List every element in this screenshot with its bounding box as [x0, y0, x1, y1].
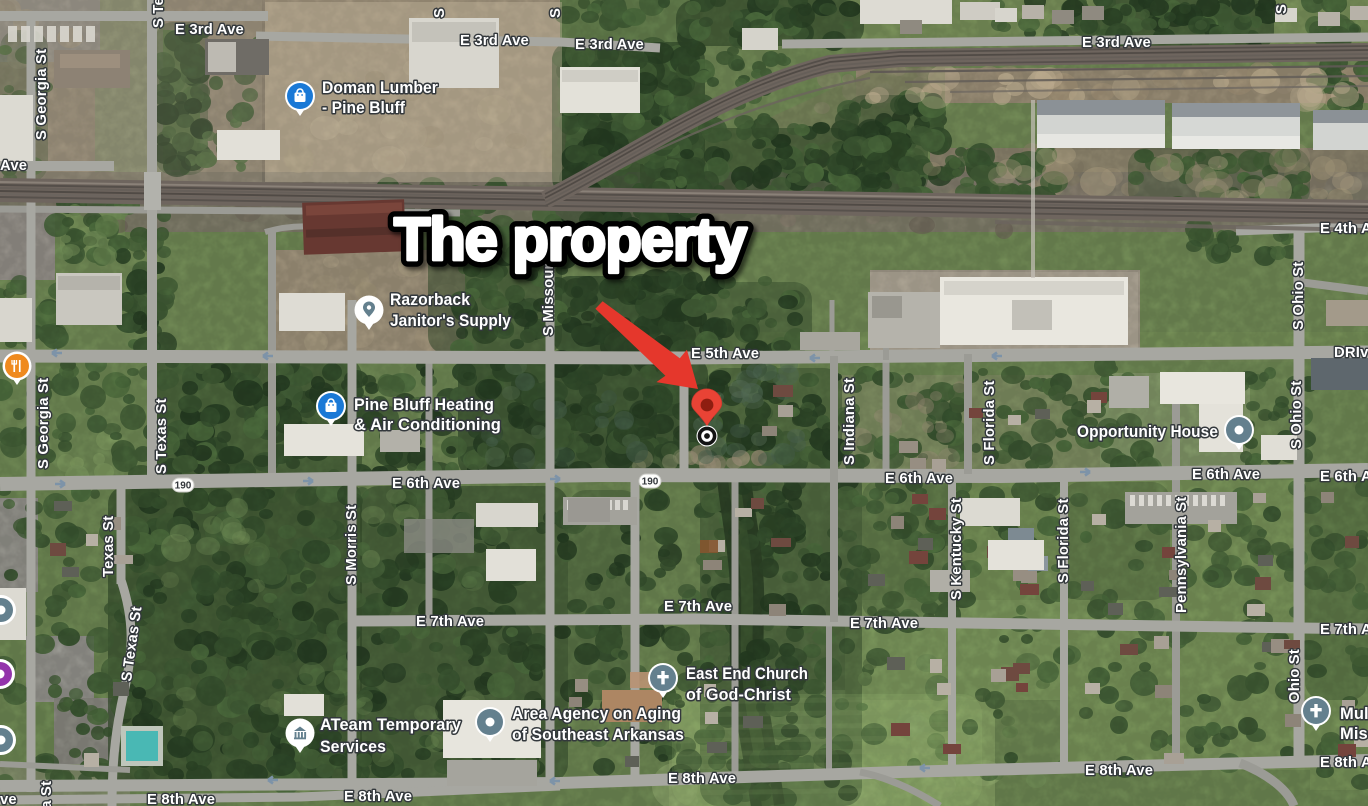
svg-text:S Morris St: S Morris St — [344, 505, 360, 585]
svg-text:S Texas St: S Texas St — [154, 398, 170, 474]
svg-text:Razorback: Razorback — [390, 291, 471, 309]
svg-text:E 5th Ave: E 5th Ave — [691, 346, 759, 362]
svg-text:S Ohio St: S Ohio St — [1291, 262, 1307, 330]
svg-text:E 4th A: E 4th A — [1320, 221, 1368, 237]
svg-text:of Southeast Arkansas: of Southeast Arkansas — [512, 726, 684, 744]
svg-text:E 3rd Ave: E 3rd Ave — [175, 22, 244, 38]
svg-text:S Georgia St: S Georgia St — [39, 781, 55, 806]
svg-text:E 3rd Ave: E 3rd Ave — [460, 33, 529, 49]
svg-text:Texas St: Texas St — [101, 516, 117, 577]
svg-text:ve: ve — [0, 792, 17, 806]
svg-text:S: S — [548, 8, 564, 18]
svg-text:Pennsylvania St: Pennsylvania St — [1174, 497, 1190, 614]
svg-text:190: 190 — [642, 477, 659, 488]
svg-text:S Georgia St: S Georgia St — [36, 378, 52, 469]
svg-text:Ohio St: Ohio St — [1287, 649, 1303, 703]
svg-text:E 7th A: E 7th A — [1320, 622, 1368, 638]
svg-text:Doman Lumber: Doman Lumber — [322, 79, 438, 97]
svg-text:Services: Services — [320, 738, 386, 756]
svg-text:E 6th Ave: E 6th Ave — [885, 471, 953, 487]
svg-text:Opportunity House: Opportunity House — [1077, 423, 1218, 441]
svg-text:S: S — [1274, 4, 1290, 14]
svg-text:E 7th Ave: E 7th Ave — [664, 599, 732, 615]
svg-text:S Ohio St: S Ohio St — [1289, 381, 1305, 449]
svg-text:E 8th Ave: E 8th Ave — [668, 771, 736, 787]
svg-text:ATeam Temporary: ATeam Temporary — [320, 716, 462, 734]
svg-text:E 3rd Ave: E 3rd Ave — [575, 37, 644, 53]
svg-text:190: 190 — [175, 481, 192, 492]
svg-text:Miss: Miss — [1340, 725, 1368, 743]
svg-text:S: S — [432, 8, 448, 18]
svg-text:S Indiana St: S Indiana St — [842, 378, 858, 465]
svg-text:& Air Conditioning: & Air Conditioning — [354, 416, 501, 434]
svg-text:S Georgia St: S Georgia St — [34, 49, 50, 140]
svg-text:S Florida St: S Florida St — [1056, 498, 1072, 583]
svg-text:S Texas St: S Texas St — [151, 0, 167, 28]
svg-text:S Florida St: S Florida St — [982, 380, 998, 465]
svg-text:E 7th Ave: E 7th Ave — [850, 616, 918, 632]
svg-text:E 8th Ave: E 8th Ave — [147, 792, 215, 806]
svg-text:E 6th A: E 6th A — [1320, 469, 1368, 485]
svg-text:S Kentucky St: S Kentucky St — [949, 498, 965, 600]
svg-text:Mul: Mul — [1340, 705, 1368, 723]
svg-text:E 6th Ave: E 6th Ave — [392, 476, 460, 492]
svg-text:Janitor's Supply: Janitor's Supply — [390, 312, 512, 330]
svg-text:Ave: Ave — [0, 158, 27, 174]
svg-text:DRIv: DRIv — [1334, 345, 1368, 361]
svg-text:E 3rd Ave: E 3rd Ave — [1082, 35, 1151, 51]
svg-text:E 8th Ave: E 8th Ave — [344, 789, 412, 805]
svg-text:E 8th A: E 8th A — [1320, 755, 1368, 771]
svg-text:of God-Christ: of God-Christ — [686, 686, 791, 704]
svg-text:E 7th Ave: E 7th Ave — [416, 614, 484, 630]
svg-text:E 6th Ave: E 6th Ave — [1192, 467, 1260, 483]
svg-text:The property: The property — [394, 206, 748, 273]
svg-text:- Pine Bluff: - Pine Bluff — [322, 99, 405, 117]
svg-text:East End Church: East End Church — [686, 665, 808, 683]
svg-text:Area Agency on Aging: Area Agency on Aging — [512, 705, 681, 723]
svg-text:Pine Bluff Heating: Pine Bluff Heating — [354, 396, 494, 414]
svg-text:E 8th Ave: E 8th Ave — [1085, 763, 1153, 779]
